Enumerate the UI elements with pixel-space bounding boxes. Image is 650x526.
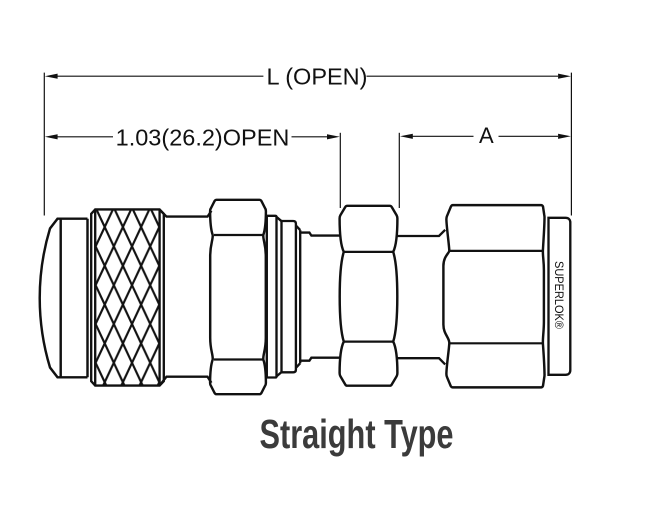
svg-text:1.03(26.2)OPEN: 1.03(26.2)OPEN xyxy=(116,124,290,150)
svg-text:SUPERLOK®: SUPERLOK® xyxy=(552,261,566,329)
svg-text:L (OPEN): L (OPEN) xyxy=(267,64,368,90)
svg-text:A: A xyxy=(479,123,494,148)
svg-text:Straight Type: Straight Type xyxy=(260,411,454,457)
